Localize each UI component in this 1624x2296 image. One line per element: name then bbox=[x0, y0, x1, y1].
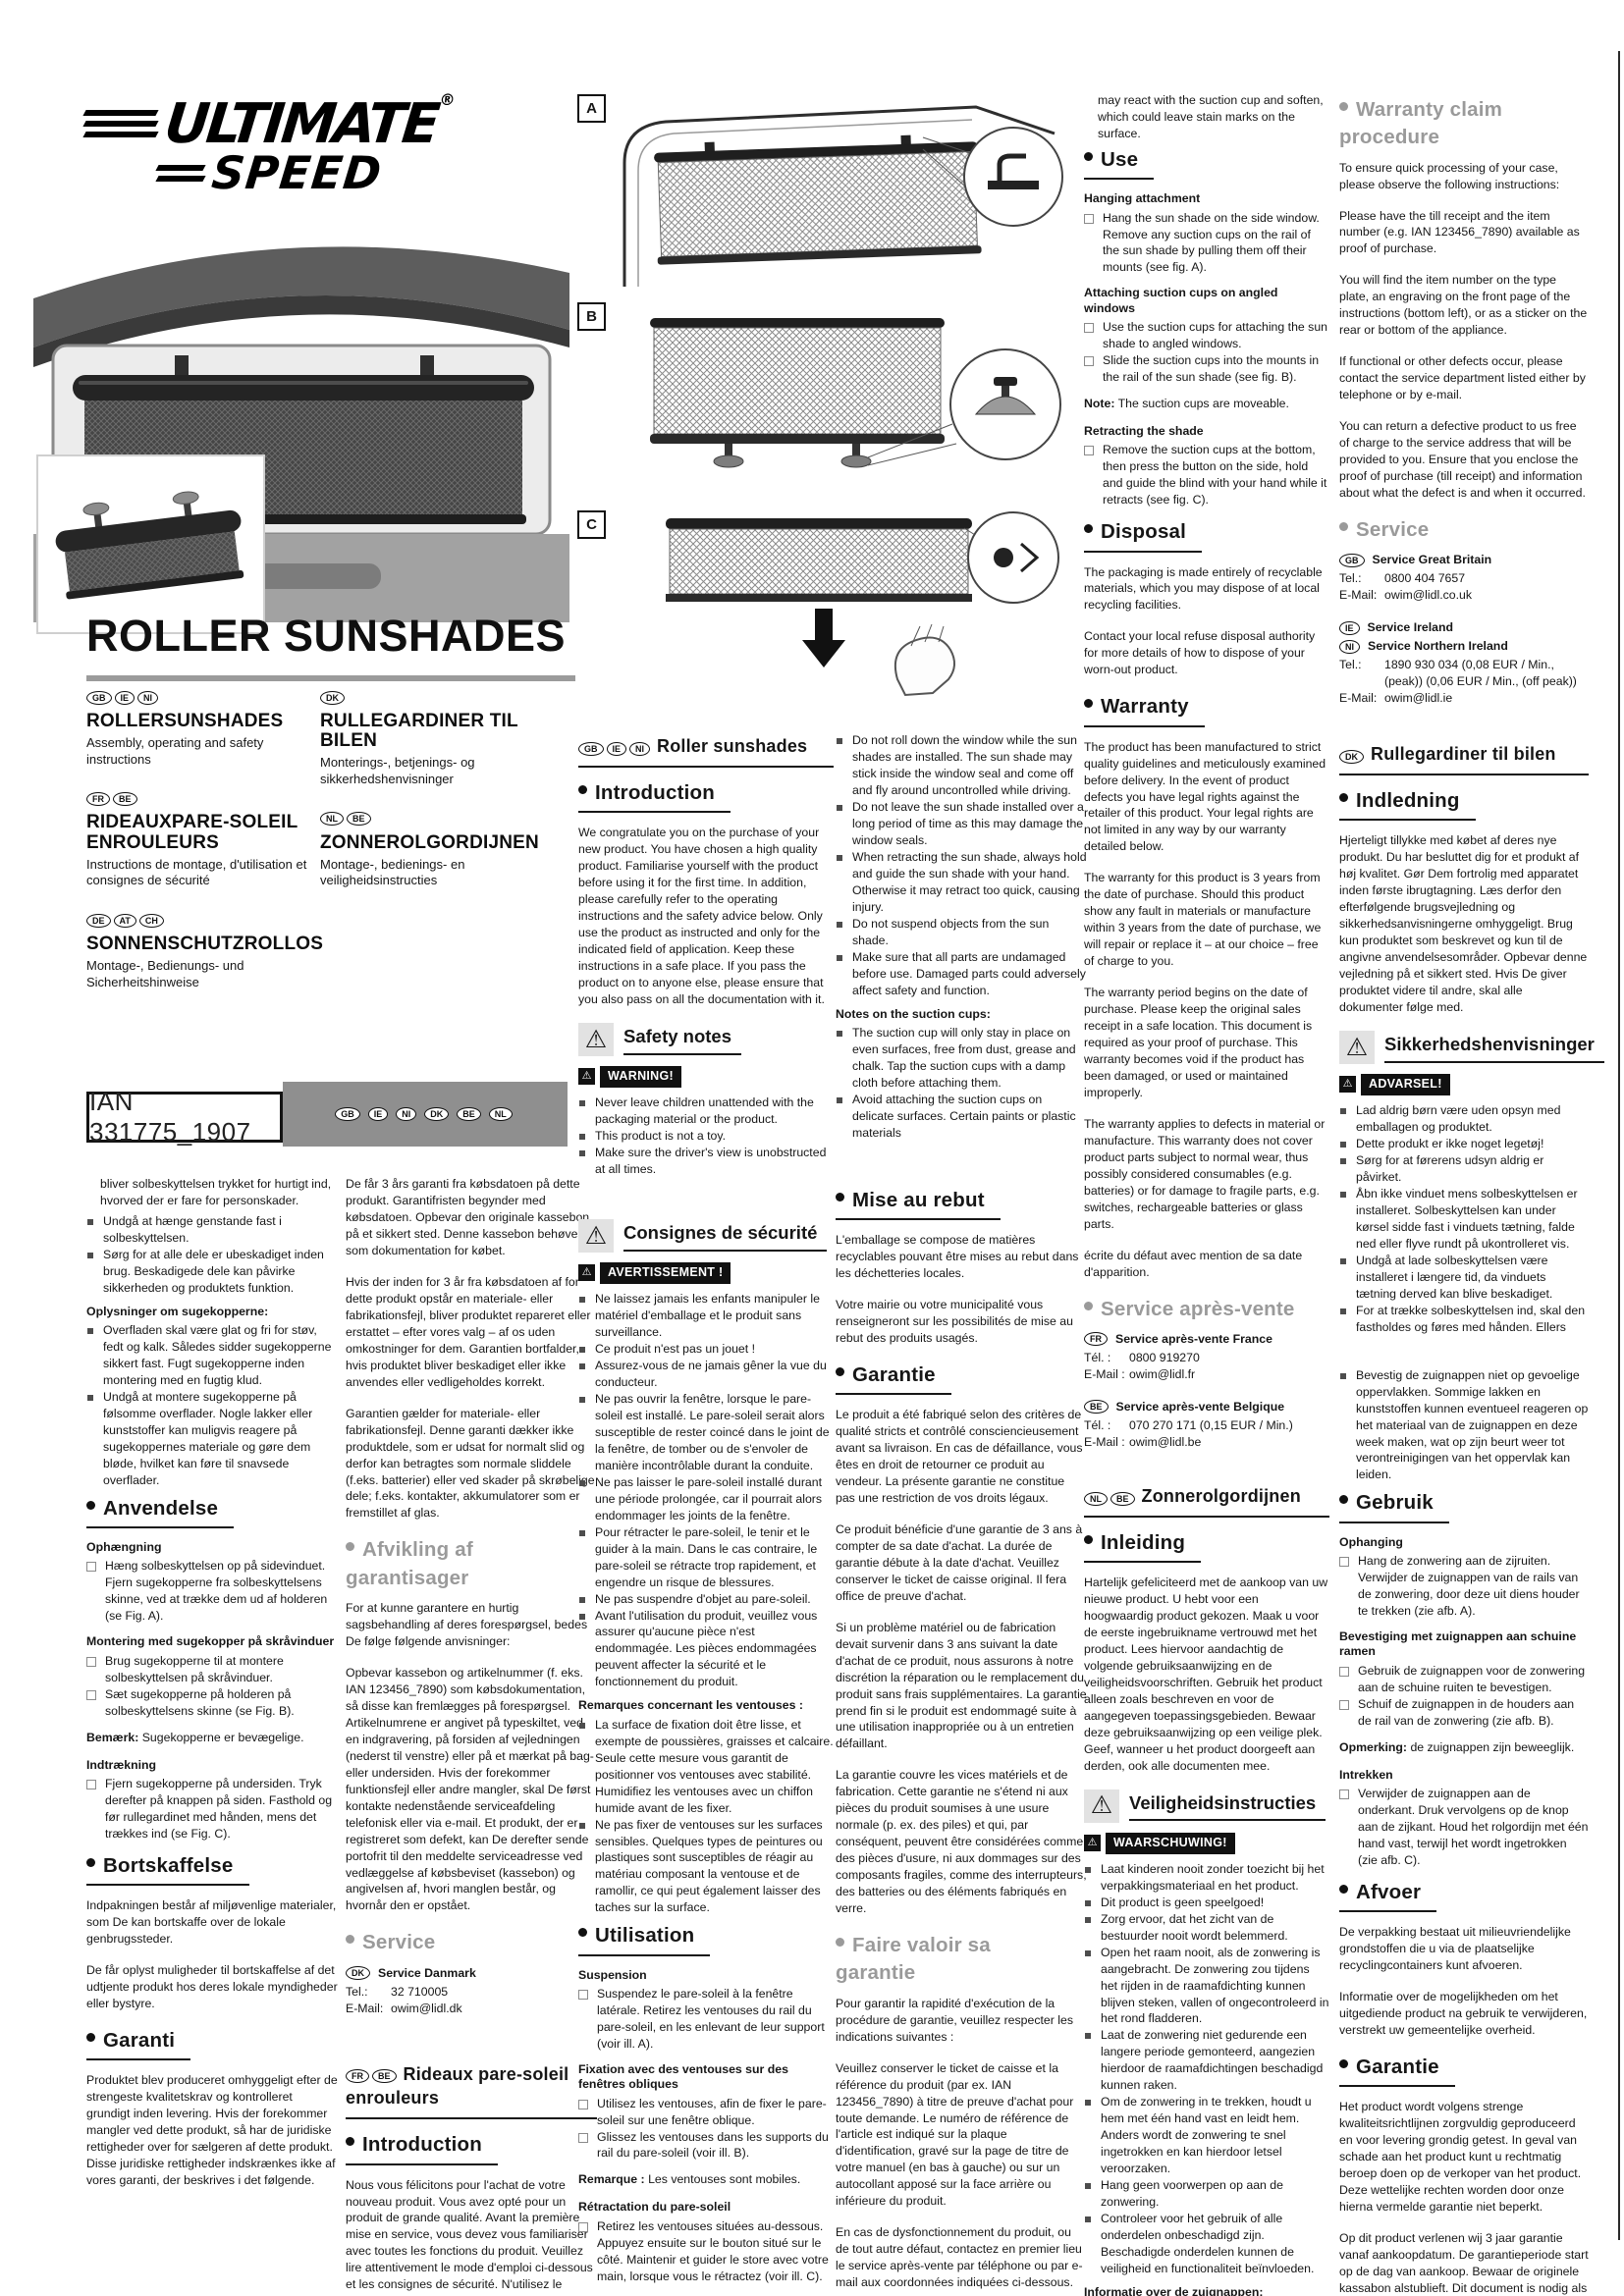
square-bullet-icon bbox=[87, 1219, 93, 1225]
square-bullet-icon bbox=[87, 1395, 93, 1401]
checkbox-bullet-icon bbox=[1339, 1789, 1349, 1799]
square-bullet-icon bbox=[87, 1253, 93, 1258]
checkbox-bullet-icon bbox=[578, 2100, 588, 2109]
section-heading: Mise au rebut bbox=[836, 1187, 1001, 1220]
list-item: When retracting the sun shade, always ho… bbox=[836, 849, 1087, 916]
warning-triangle-icon: ⚠ bbox=[578, 1264, 595, 1281]
service-line-value: owim@lidl.co.uk bbox=[1384, 587, 1589, 604]
language-badges: NLBE bbox=[320, 811, 575, 828]
country-badge: AT bbox=[114, 914, 136, 928]
warning-triangle-icon: ⚠ bbox=[578, 1068, 595, 1085]
page-edge-mark bbox=[1618, 51, 1620, 2240]
service-line-value: owim@lidl.fr bbox=[1129, 1366, 1329, 1383]
service-name: BEService après-vente Belgique bbox=[1084, 1399, 1329, 1415]
checkbox-bullet-icon bbox=[578, 2133, 588, 2143]
list-item: Undgå at montere sugekopperne på følsomm… bbox=[86, 1389, 338, 1489]
product-photo-inset-rolled-shade bbox=[35, 454, 266, 635]
subsection-heading: Notes on the suction cups: bbox=[836, 1007, 1087, 1022]
section-heading: Inleiding bbox=[1084, 1529, 1201, 1563]
list-item-text: Suspendez le pare-soleil à la fenêtre la… bbox=[597, 1986, 834, 2053]
paragraph: bliver solbeskyttelsen trykket for hurti… bbox=[86, 1176, 338, 1209]
list-item-text: Lad aldrig børn være uden opsyn med emba… bbox=[1356, 1102, 1589, 1136]
list-item-text: Hang de zonwering aan de zijruiten. Verw… bbox=[1358, 1553, 1589, 1620]
language-block: DEATCHSONNENSCHUTZROLLOSMontage-, Bedien… bbox=[86, 912, 322, 990]
section-heading: Afvoer bbox=[1339, 1879, 1436, 1912]
service-contact: BEService après-vente BelgiqueTél. :070 … bbox=[1084, 1399, 1329, 1451]
country-badge: IE bbox=[115, 691, 135, 705]
bullet-dot-icon bbox=[86, 2033, 95, 2042]
country-badge: DK bbox=[320, 691, 345, 705]
list-item-text: Remove the suction cups at the bottom, t… bbox=[1103, 442, 1329, 508]
service-line-label: Tél. : bbox=[1084, 1350, 1129, 1366]
paragraph: Hartelijk gefeliciteerd met de aankoop v… bbox=[1084, 1575, 1329, 1775]
paragraph: Pour garantir la rapidité d'exécution de… bbox=[836, 1996, 1087, 2046]
list-item-text: Slide the suction cups into the mounts i… bbox=[1103, 352, 1329, 386]
square-bullet-icon bbox=[837, 738, 842, 744]
list: Undgå at hænge genstande fast i solbesky… bbox=[86, 1213, 338, 1297]
list-item: Assurez-vous de ne jamais gêner la vue d… bbox=[578, 1358, 834, 1391]
square-bullet-icon bbox=[579, 1150, 585, 1156]
list-item: Ne pas ouvrir la fenêtre, lorsque le par… bbox=[578, 1391, 834, 1474]
language-title: SONNENSCHUTZROLLOS bbox=[86, 934, 322, 954]
country-badge: NI bbox=[137, 691, 158, 705]
warning-triangle-icon: ⚠ bbox=[1084, 1835, 1101, 1851]
service-contact: DKService DanmarkTel.:32 710005E-Mail:ow… bbox=[346, 1965, 597, 2017]
service-line-value: owim@lidl.dk bbox=[391, 2001, 597, 2017]
list-item: This product is not a toy. bbox=[578, 1128, 834, 1145]
bullet-dot-icon bbox=[578, 1928, 587, 1937]
country-badge: NI bbox=[629, 742, 650, 756]
section-heading-label: Afvikling af garantisager bbox=[346, 1538, 473, 1588]
section-heading: Service bbox=[346, 1929, 451, 1956]
list-item-text: Fjern sugekopperne på undersiden. Tryk d… bbox=[105, 1776, 338, 1842]
paragraph: For at kunne garantere en hurtig sagsbeh… bbox=[346, 1600, 597, 1650]
section-heading: Disposal bbox=[1084, 518, 1202, 552]
section-heading: Service bbox=[1339, 516, 1444, 544]
section-heading-label: Anvendelse bbox=[103, 1497, 218, 1520]
list-item-text: When retracting the sun shade, always ho… bbox=[852, 849, 1087, 916]
list: Ne laissez jamais les enfants manipuler … bbox=[578, 1291, 834, 1690]
safety-heading: ⚠Consignes de sécurité bbox=[578, 1219, 834, 1253]
section-heading: Introduction bbox=[346, 2131, 498, 2164]
checkbox-bullet-icon bbox=[1084, 323, 1094, 333]
section-heading: Bortskaffelse bbox=[86, 1852, 249, 1886]
bullet-dot-icon bbox=[578, 785, 587, 794]
list-item: Do not roll down the window while the su… bbox=[836, 732, 1087, 799]
bullet-dot-icon bbox=[86, 1858, 95, 1867]
list-item: Åbn ikke vinduet mens solbeskyttelsen er… bbox=[1339, 1186, 1589, 1253]
list-item: Dit product is geen speelgoed! bbox=[1084, 1895, 1329, 1911]
language-title: ROLLERSUNSHADES bbox=[86, 712, 322, 731]
section-heading-label: Faire valoir sa garantie bbox=[836, 1934, 991, 1984]
paragraph: Le produit a été fabriqué selon des crit… bbox=[836, 1407, 1087, 1507]
list-item-text: Ne pas laisser le pare-soleil installé d… bbox=[595, 1474, 834, 1524]
service-name: FRService après-vente France bbox=[1084, 1331, 1329, 1348]
paragraph: The warranty period begins on the date o… bbox=[1084, 985, 1329, 1101]
paragraph: La garantie couvre les vices matériels e… bbox=[836, 1767, 1087, 1917]
list-item-text: Undgå at montere sugekopperne på følsomm… bbox=[103, 1389, 338, 1489]
paragraph: The product has been manufactured to str… bbox=[1084, 739, 1329, 856]
bullet-dot-icon bbox=[1084, 152, 1093, 161]
list-item-text: Hæng solbeskyttelsen op på sidevinduet. … bbox=[105, 1558, 338, 1625]
checkbox-bullet-icon bbox=[1339, 1667, 1349, 1677]
country-badge: BE bbox=[1084, 1400, 1109, 1414]
list-item-text: Pour rétracter le pare-soleil, le tenir … bbox=[595, 1524, 834, 1591]
section-heading-label: Introduction bbox=[362, 2133, 482, 2156]
country-badge: IE bbox=[1339, 621, 1360, 635]
section-heading: Service après-vente bbox=[1084, 1296, 1311, 1323]
paragraph: Contact your local refuse disposal autho… bbox=[1084, 628, 1329, 678]
list-item: Ce produit n'est pas un jouet ! bbox=[578, 1341, 834, 1358]
subsection-heading: Intrekken bbox=[1339, 1768, 1589, 1783]
paragraph: You will find the item number on the typ… bbox=[1339, 272, 1589, 339]
list-item-text: Zorg ervoor, dat het zicht van de bestuu… bbox=[1101, 1911, 1329, 1945]
square-bullet-icon bbox=[579, 1614, 585, 1620]
service-contact: IEService IrelandNIService Northern Irel… bbox=[1339, 619, 1589, 707]
square-bullet-icon bbox=[1085, 1950, 1091, 1956]
language-subtitle: Montage-, bedienings- en veiligheidsinst… bbox=[320, 857, 575, 889]
list-item-text: Bevestig de zuignappen niet op gevoelige… bbox=[1356, 1367, 1589, 1484]
paragraph: If functional or other defects occur, pl… bbox=[1339, 353, 1589, 403]
list: Verwijder de zuignappen aan de onderkant… bbox=[1339, 1786, 1589, 1869]
service-name-text: Service Ireland bbox=[1368, 619, 1454, 636]
square-bullet-icon bbox=[1085, 1867, 1091, 1873]
service-line-label: Tel.: bbox=[346, 1984, 391, 2001]
bullet-dot-icon bbox=[346, 1542, 354, 1551]
list-item: Sørg for at alle dele er ubeskadiget ind… bbox=[86, 1247, 338, 1297]
list-item: Open het raam nooit, als de zonwering is… bbox=[1084, 1945, 1329, 2028]
service-line-value: 070 270 171 (0,15 EUR / Min.) bbox=[1129, 1417, 1329, 1434]
safety-heading-label: Sikkerhedshenvisninger bbox=[1384, 1032, 1604, 1063]
checkbox-bullet-icon bbox=[1339, 1557, 1349, 1567]
country-badge: NL bbox=[320, 812, 344, 826]
section-heading-label: Garantie bbox=[852, 1363, 936, 1386]
figure-c-illustration bbox=[611, 503, 1065, 697]
square-bullet-icon bbox=[579, 1530, 585, 1536]
note-text: Sugekopperne er bevægelige. bbox=[142, 1731, 304, 1744]
list: Brug sugekopperne til at montere solbesk… bbox=[86, 1653, 338, 1720]
service-line: Tel.:32 710005 bbox=[346, 1984, 597, 2001]
warning-label: ⚠WARNING! bbox=[578, 1066, 834, 1088]
service-name: IEService Ireland bbox=[1339, 619, 1589, 636]
service-line-value: owim@lidl.ie bbox=[1384, 690, 1589, 707]
list-item: Ne pas fixer de ventouses sur les surfac… bbox=[578, 1817, 834, 1917]
country-badge: BE bbox=[372, 2069, 397, 2083]
bullet-dot-icon bbox=[1339, 793, 1348, 802]
service-line-label: Tel.: bbox=[1339, 570, 1384, 587]
list-item: Fjern sugekopperne på undersiden. Tryk d… bbox=[86, 1776, 338, 1842]
list-item-text: Make sure the driver's view is unobstruc… bbox=[595, 1145, 834, 1178]
list: Utilisez les ventouses, afin de fixer le… bbox=[578, 2096, 834, 2163]
list-item: Hang geen voorwerpen op aan de zonwering… bbox=[1084, 2177, 1329, 2211]
paragraph: écrite du défaut avec mention de sa date… bbox=[1084, 1248, 1329, 1281]
service-name-text: Service après-vente Belgique bbox=[1116, 1399, 1285, 1415]
list-item: Zorg ervoor, dat het zicht van de bestuu… bbox=[1084, 1911, 1329, 1945]
list-item: Pour rétracter le pare-soleil, le tenir … bbox=[578, 1524, 834, 1591]
product-heading: DKRullegardiner til bilen bbox=[1339, 742, 1589, 775]
square-bullet-icon bbox=[837, 805, 842, 811]
country-badge: IE bbox=[607, 742, 627, 756]
service-name-text: Service après-vente France bbox=[1115, 1331, 1272, 1348]
text-column-1: bliver solbeskyttelsen trykket for hurti… bbox=[86, 1176, 338, 2204]
section-heading-label: Disposal bbox=[1101, 520, 1186, 543]
list-item: Laat de zonwering niet gedurende een lan… bbox=[1084, 2027, 1329, 2094]
product-heading-label: Roller sunshades bbox=[657, 736, 807, 756]
section-heading: Garantie bbox=[836, 1362, 951, 1395]
bullet-dot-icon bbox=[346, 1935, 354, 1944]
service-name: DKService Danmark bbox=[346, 1965, 597, 1982]
list-item-text: Dette produkt er ikke noget legetøj! bbox=[1356, 1136, 1589, 1152]
country-badge: NL bbox=[489, 1107, 513, 1121]
service-line-label: Tel.: bbox=[1339, 657, 1384, 690]
checkbox-bullet-icon bbox=[86, 1657, 96, 1667]
spacer bbox=[1339, 722, 1589, 740]
list-item: Use the suction cups for attaching the s… bbox=[1084, 319, 1329, 352]
service-name: NIService Northern Ireland bbox=[1339, 638, 1589, 655]
spacer bbox=[836, 1148, 1087, 1183]
checkbox-bullet-icon bbox=[86, 1690, 96, 1700]
list-item-text: Never leave children unattended with the… bbox=[595, 1095, 834, 1128]
subsection-heading: Informatie over de zuignappen: bbox=[1084, 2285, 1329, 2296]
list-item: Undgå at lade solbeskyttelsen være insta… bbox=[1339, 1253, 1589, 1303]
paragraph: To ensure quick processing of your case,… bbox=[1339, 160, 1589, 193]
square-bullet-icon bbox=[1340, 1308, 1346, 1314]
list: Hæng solbeskyttelsen op på sidevinduet. … bbox=[86, 1558, 338, 1625]
list-item-text: This product is not a toy. bbox=[595, 1128, 834, 1145]
bullet-dot-icon bbox=[1339, 1495, 1348, 1504]
language-subtitle: Montage-, Bedienungs- und Sicherheitshin… bbox=[86, 958, 322, 990]
country-badge: GB bbox=[86, 691, 112, 705]
language-block: GBIENIROLLERSUNSHADESAssembly, operating… bbox=[86, 689, 322, 768]
list-item: Avant l'utilisation du produit, veuillez… bbox=[578, 1608, 834, 1691]
square-bullet-icon bbox=[579, 1723, 585, 1729]
bullet-dot-icon bbox=[1339, 1885, 1348, 1894]
square-bullet-icon bbox=[1340, 1142, 1346, 1148]
country-badge: GB bbox=[335, 1107, 360, 1121]
note-label: Bemærk: bbox=[86, 1731, 138, 1744]
country-badge: DE bbox=[86, 914, 111, 928]
country-badge: FR bbox=[86, 792, 110, 806]
warning-label-text: WARNING! bbox=[600, 1066, 681, 1088]
paragraph: En cas de dysfonctionnement du produit, … bbox=[836, 2224, 1087, 2291]
note-label: Remarque : bbox=[578, 2172, 645, 2186]
section-heading-label: Service après-vente bbox=[1101, 1298, 1295, 1320]
text-column-3: GBIENIRoller sunshadesIntroductionWe con… bbox=[578, 732, 834, 2295]
list-item-text: Glissez les ventouses dans les supports … bbox=[597, 2129, 834, 2163]
list-item-text: Assurez-vous de ne jamais gêner la vue d… bbox=[595, 1358, 834, 1391]
product-heading-label: Rullegardiner til bilen bbox=[1371, 744, 1556, 764]
logo-speed-stripes-icon bbox=[84, 105, 157, 142]
list-item: Hang the sun shade on the side window. R… bbox=[1084, 210, 1329, 277]
paragraph: The packaging is made entirely of recycl… bbox=[1084, 564, 1329, 614]
language-subtitle: Monterings-, betjenings- og sikkerhedshe… bbox=[320, 755, 575, 787]
safety-heading-label: Safety notes bbox=[623, 1024, 741, 1055]
list-item-text: Do not roll down the window while the su… bbox=[852, 732, 1087, 799]
square-bullet-icon bbox=[579, 1347, 585, 1353]
section-heading-label: Use bbox=[1101, 148, 1138, 171]
list-item-text: Åbn ikke vinduet mens solbeskyttelsen er… bbox=[1356, 1186, 1589, 1253]
service-line: Tél. :070 270 171 (0,15 EUR / Min.) bbox=[1084, 1417, 1329, 1434]
country-badge: BE bbox=[113, 792, 137, 806]
subsection-heading: Fixation avec des ventouses sur des fenê… bbox=[578, 2062, 834, 2093]
service-line-label: E-Mail : bbox=[1084, 1366, 1129, 1383]
country-badge: BE bbox=[1110, 1492, 1135, 1506]
country-badge: GB bbox=[578, 742, 604, 756]
list-item: For at trække solbeskyttelsen ind, skal … bbox=[1339, 1303, 1589, 1336]
service-line-value: 32 710005 bbox=[391, 1984, 597, 2001]
figure-a-label: A bbox=[577, 94, 606, 123]
subsection-heading: Ophanging bbox=[1339, 1535, 1589, 1550]
square-bullet-icon bbox=[1085, 2183, 1091, 2189]
list: Bevestig de zuignappen niet op gevoelige… bbox=[1339, 1367, 1589, 1484]
service-line: E-Mail:owim@lidl.dk bbox=[346, 2001, 597, 2017]
bullet-dot-icon bbox=[1339, 102, 1348, 111]
country-badge: DK bbox=[1339, 750, 1364, 764]
paragraph: may react with the suction cup and softe… bbox=[1084, 92, 1329, 142]
list: Fjern sugekopperne på undersiden. Tryk d… bbox=[86, 1776, 338, 1842]
language-blocks-right: DKRULLEGARDINER TIL BILENMonterings-, be… bbox=[320, 689, 575, 912]
note-text: The suction cups are moveable. bbox=[1118, 397, 1289, 410]
list-item: Brug sugekopperne til at montere solbesk… bbox=[86, 1653, 338, 1686]
language-block: NLBEZONNEROLGORDIJNENMontage-, bediening… bbox=[320, 811, 575, 889]
language-subtitle: Instructions de montage, d'utilisation e… bbox=[86, 857, 322, 889]
square-bullet-icon bbox=[579, 1823, 585, 1829]
service-line-label: E-Mail: bbox=[1339, 690, 1384, 707]
subsection-heading: Montering med sugekopper på skråvinduer bbox=[86, 1634, 338, 1649]
section-heading: Afvikling af garantisager bbox=[346, 1536, 597, 1592]
subsection-heading: Suspension bbox=[578, 1968, 834, 1983]
list-item-text: Open het raam nooit, als de zonwering is… bbox=[1101, 1945, 1329, 2028]
safety-heading-label: Veiligheidsinstructies bbox=[1129, 1790, 1326, 1822]
product-heading-label: Zonnerolgordijnen bbox=[1142, 1486, 1301, 1506]
list-item-text: Ne pas fixer de ventouses sur les surfac… bbox=[595, 1817, 834, 1917]
warning-triangle-icon: ⚠ bbox=[578, 1023, 614, 1056]
subsection-heading: Hanging attachment bbox=[1084, 191, 1329, 206]
list-item: The suction cup will only stay in place … bbox=[836, 1025, 1087, 1092]
service-line: E-Mail:owim@lidl.ie bbox=[1339, 690, 1589, 707]
list: Remove the suction cups at the bottom, t… bbox=[1084, 442, 1329, 508]
paragraph: We congratulate you on the purchase of y… bbox=[578, 825, 834, 1008]
note-text: de zuignappen zijn beweeglijk. bbox=[1410, 1740, 1574, 1754]
paragraph: Si un problème matériel ou de fabricatio… bbox=[836, 1620, 1087, 1753]
square-bullet-icon bbox=[837, 955, 842, 961]
paragraph: Garantien gælder for materiale- eller fa… bbox=[346, 1406, 597, 1522]
list-item: Sæt sugekopperne på holderen på solbesky… bbox=[86, 1686, 338, 1720]
list: La surface de fixation doit être lisse, … bbox=[578, 1717, 834, 1917]
section-heading-label: Mise au rebut bbox=[852, 1189, 985, 1211]
list: Use the suction cups for attaching the s… bbox=[1084, 319, 1329, 386]
list-item: Dette produkt er ikke noget legetøj! bbox=[1339, 1136, 1589, 1152]
list-item-text: Laat kinderen nooit zonder toezicht bij … bbox=[1101, 1861, 1329, 1895]
product-heading: NLBEZonnerolgordijnen bbox=[1084, 1484, 1329, 1518]
language-title: RIDEAUXPARE-SOLEIL ENROULEURS bbox=[86, 813, 322, 852]
country-badge: DK bbox=[346, 1966, 370, 1980]
country-badge: CH bbox=[139, 914, 164, 928]
paragraph: Votre mairie ou votre municipalité vous … bbox=[836, 1297, 1087, 1347]
section-heading: Warranty bbox=[1084, 693, 1205, 726]
list-item-text: Avant l'utilisation du produit, veuillez… bbox=[595, 1608, 834, 1691]
square-bullet-icon bbox=[87, 1328, 93, 1334]
warning-label: ⚠AVERTISSEMENT ! bbox=[578, 1262, 834, 1284]
checkbox-bullet-icon bbox=[1084, 356, 1094, 366]
list-item: Overfladen skal være glat og fri for stø… bbox=[86, 1322, 338, 1389]
text-column-5: may react with the suction cup and softe… bbox=[1084, 92, 1329, 2296]
section-heading: Use bbox=[1084, 146, 1154, 180]
subsection-heading: Retracting the shade bbox=[1084, 424, 1329, 439]
square-bullet-icon bbox=[837, 855, 842, 861]
list-item-text: Ne pas suspendre d'objet au pare-soleil. bbox=[595, 1591, 834, 1608]
bullet-dot-icon bbox=[1084, 1535, 1093, 1544]
list-item: Ne pas suspendre d'objet au pare-soleil. bbox=[578, 1591, 834, 1608]
section-heading: Warranty claim procedure bbox=[1339, 96, 1589, 152]
section-heading-label: Bortskaffelse bbox=[103, 1854, 234, 1877]
square-bullet-icon bbox=[579, 1597, 585, 1603]
service-name-text: Service Northern Ireland bbox=[1368, 638, 1508, 655]
service-contact: GBService Great BritainTel.:0800 404 765… bbox=[1339, 552, 1589, 604]
title-divider bbox=[86, 675, 575, 681]
list-item: Do not leave the sun shade installed ove… bbox=[836, 799, 1087, 849]
bullet-dot-icon bbox=[836, 1367, 844, 1376]
list-item: Controleer voor het gebruik of alle onde… bbox=[1084, 2211, 1329, 2277]
section-heading-label: Utilisation bbox=[595, 1924, 694, 1947]
paragraph: The warranty for this product is 3 years… bbox=[1084, 870, 1329, 970]
figure-b-label: B bbox=[577, 302, 606, 331]
section-heading: Introduction bbox=[578, 779, 731, 813]
bullet-dot-icon bbox=[1339, 522, 1348, 531]
note-line: Note: The suction cups are moveable. bbox=[1084, 396, 1329, 412]
country-badge: FR bbox=[346, 2069, 369, 2083]
warning-triangle-icon: ⚠ bbox=[578, 1219, 614, 1253]
list-item: Sørg for at førerens udsyn aldrig er påv… bbox=[1339, 1152, 1589, 1186]
list-item-text: Schuif de zuignappen in de houders aan d… bbox=[1358, 1696, 1589, 1730]
language-blocks-left: GBIENIROLLERSUNSHADESAssembly, operating… bbox=[86, 689, 322, 1013]
checkbox-bullet-icon bbox=[1084, 446, 1094, 455]
list-item: Never leave children unattended with the… bbox=[578, 1095, 834, 1128]
subsection-heading: Rétractation du pare-soleil bbox=[578, 2200, 834, 2215]
list-item: Make sure that all parts are undamaged b… bbox=[836, 949, 1087, 999]
bullet-dot-icon bbox=[1084, 1302, 1093, 1310]
paragraph: Hjerteligt tillykke med købet af deres n… bbox=[1339, 832, 1589, 1016]
figure-a-illustration bbox=[611, 90, 1065, 292]
country-badge: DK bbox=[424, 1107, 449, 1121]
figure-b-illustration bbox=[611, 294, 1065, 501]
paragraph: Indpakningen består af miljøvenlige mate… bbox=[86, 1897, 338, 1948]
bullet-dot-icon bbox=[836, 1193, 844, 1201]
section-heading-label: Indledning bbox=[1356, 789, 1460, 812]
square-bullet-icon bbox=[579, 1297, 585, 1303]
list-item-text: Ne laissez jamais les enfants manipuler … bbox=[595, 1291, 834, 1341]
language-badges: DEATCH bbox=[86, 912, 322, 930]
square-bullet-icon bbox=[579, 1397, 585, 1403]
list-item: Do not suspend objects from the sun shad… bbox=[836, 916, 1087, 949]
subsection-heading: Oplysninger om sugekopperne: bbox=[86, 1305, 338, 1319]
subsection-heading: Indtrækning bbox=[86, 1758, 338, 1773]
warning-label-text: WAARSCHUWING! bbox=[1106, 1833, 1235, 1854]
registered-mark: ® bbox=[439, 90, 457, 109]
figure-c-label: C bbox=[577, 510, 606, 539]
service-line-value: 0800 919270 bbox=[1129, 1350, 1329, 1366]
service-contact: FRService après-vente FranceTél. :0800 9… bbox=[1084, 1331, 1329, 1383]
text-column-4: Do not roll down the window while the su… bbox=[836, 732, 1087, 2296]
square-bullet-icon bbox=[579, 1480, 585, 1486]
safety-heading: ⚠Veiligheidsinstructies bbox=[1084, 1789, 1329, 1823]
paragraph: Op dit product verlenen wij 3 jaar garan… bbox=[1339, 2230, 1589, 2296]
list-item-text: Om de zonwering in te trekken, houdt u h… bbox=[1101, 2094, 1329, 2177]
section-heading-label: Introduction bbox=[595, 781, 715, 804]
warning-triangle-icon: ⚠ bbox=[1339, 1031, 1375, 1064]
square-bullet-icon bbox=[837, 922, 842, 928]
list-item-text: Controleer voor het gebruik of alle onde… bbox=[1101, 2211, 1329, 2277]
